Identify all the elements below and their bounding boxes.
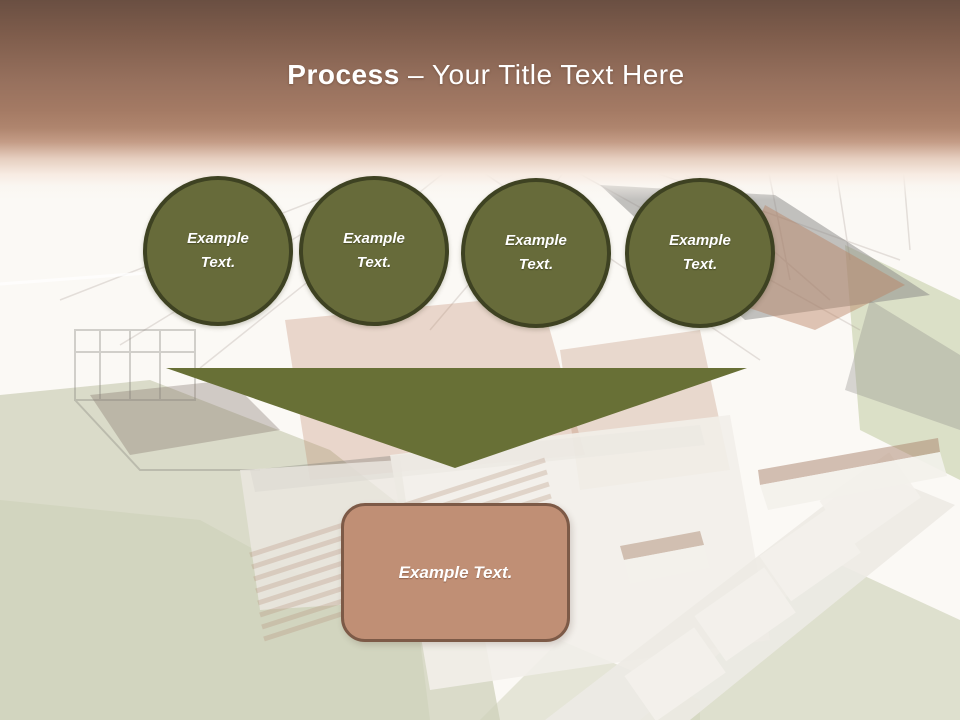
process-step-circle-4: Example Text. (625, 178, 775, 328)
slide-title: Process – Your Title Text Here (0, 56, 960, 94)
process-step-label-3: Example Text. (488, 229, 584, 277)
header-gradient (0, 0, 960, 200)
process-step-label-2: Example Text. (326, 227, 422, 275)
title-keyword: Process (287, 59, 399, 90)
process-step-circle-2: Example Text. (299, 176, 449, 326)
slide: Process – Your Title Text Here Example T… (0, 0, 960, 720)
process-step-circle-1: Example Text. (143, 176, 293, 326)
title-rest: – Your Title Text Here (400, 59, 685, 90)
process-step-label-1: Example Text. (170, 227, 266, 275)
result-callout-label: Example Text. (399, 563, 513, 583)
result-callout: Example Text. (341, 503, 570, 642)
process-step-label-4: Example Text. (652, 229, 748, 277)
process-step-circle-3: Example Text. (461, 178, 611, 328)
